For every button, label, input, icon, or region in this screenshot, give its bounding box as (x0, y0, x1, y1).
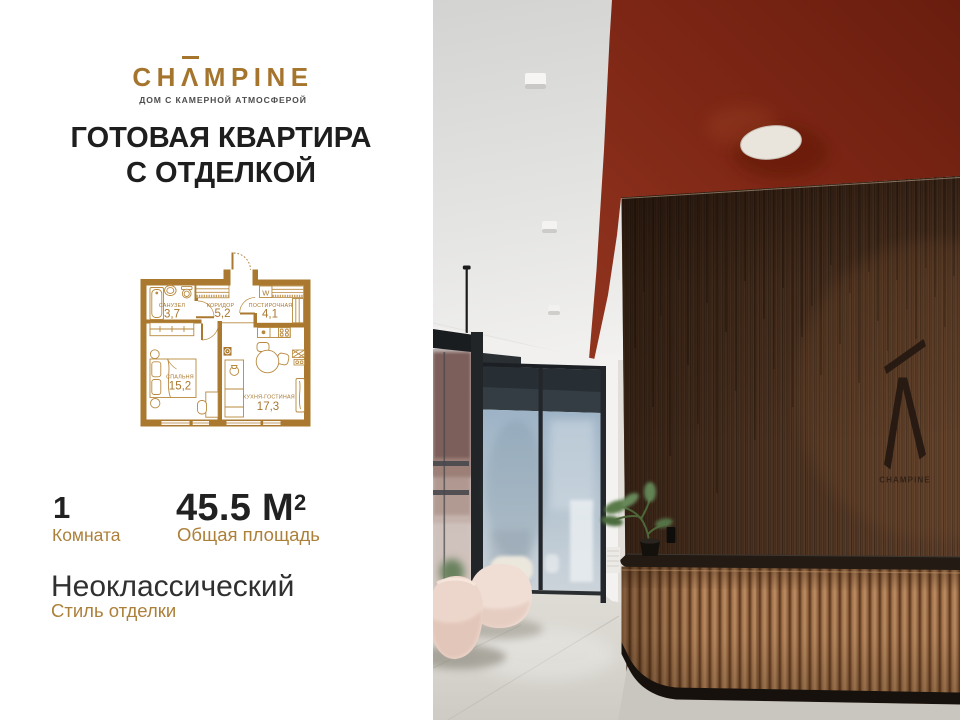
svg-text:3,7: 3,7 (164, 308, 180, 320)
svg-text:CHAMPINE: CHAMPINE (879, 476, 930, 485)
svg-text:W: W (262, 288, 270, 297)
svg-text:КУХНЯ-ГОСТИНАЯ: КУХНЯ-ГОСТИНАЯ (243, 395, 295, 401)
svg-text:4,1: 4,1 (262, 308, 278, 320)
svg-text:15,2: 15,2 (169, 380, 191, 392)
svg-text:5,2: 5,2 (215, 308, 231, 320)
svg-text:17,3: 17,3 (257, 401, 279, 413)
